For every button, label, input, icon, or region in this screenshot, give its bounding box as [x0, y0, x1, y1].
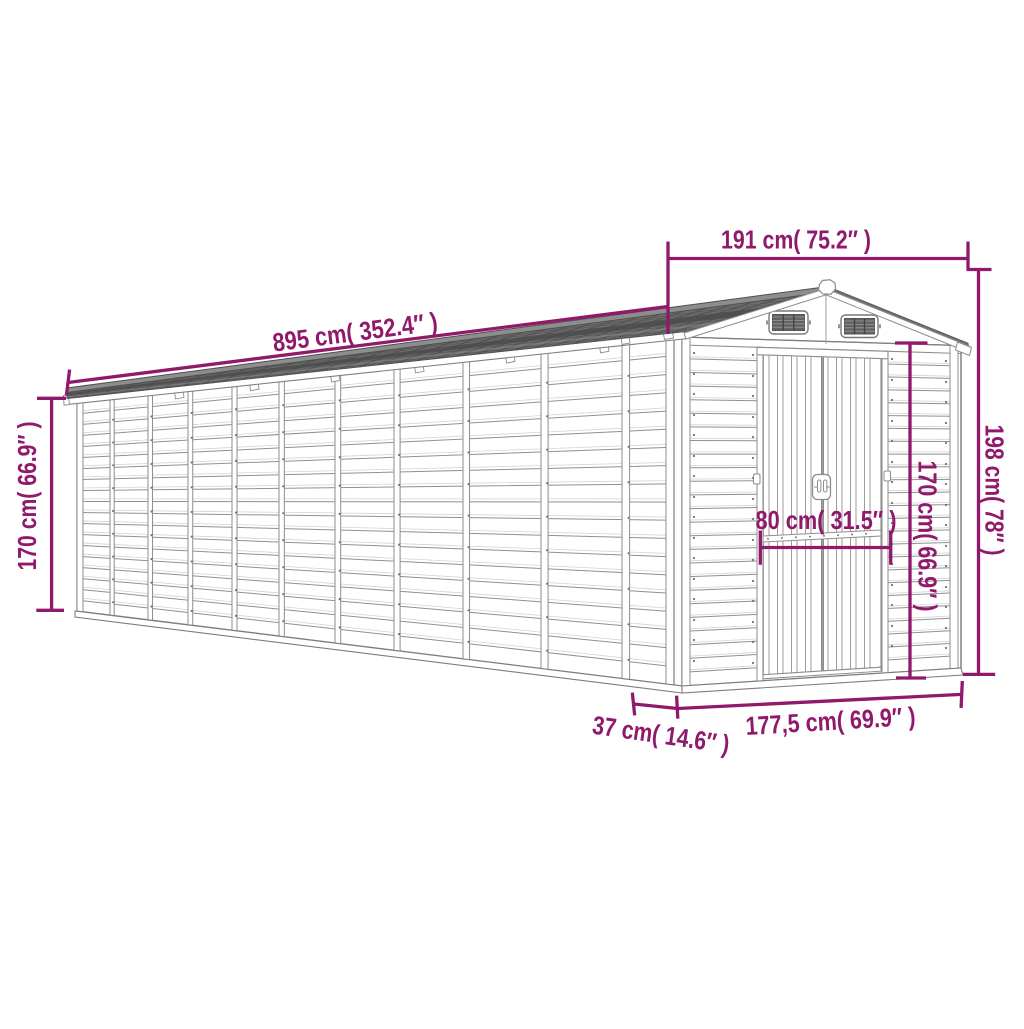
- svg-text:191 cm( 75.2″ ): 191 cm( 75.2″ ): [721, 225, 871, 255]
- svg-text:170 cm( 66.9″ ): 170 cm( 66.9″ ): [12, 422, 42, 571]
- svg-text:198 cm( 78″ ): 198 cm( 78″ ): [980, 425, 1010, 556]
- svg-text:170 cm( 66.9″ ): 170 cm( 66.9″ ): [913, 461, 943, 612]
- svg-text:80 cm( 31.5″ ): 80 cm( 31.5″ ): [756, 505, 897, 535]
